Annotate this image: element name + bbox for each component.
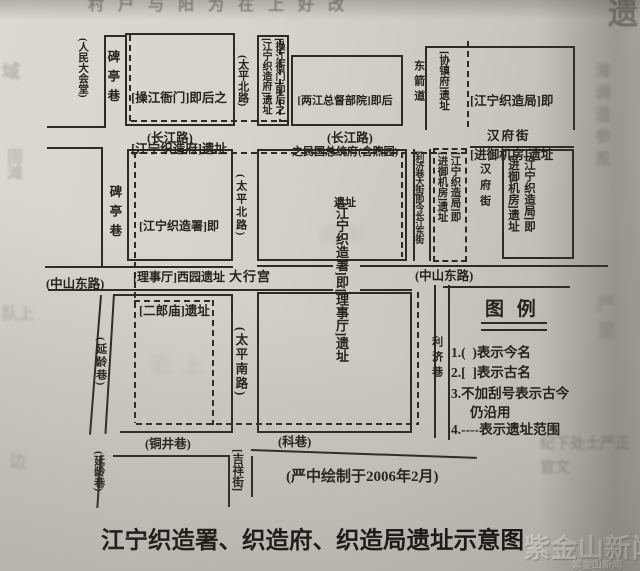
label-renmin-dahuitang: (人民大会堂) [76, 38, 88, 98]
block-outline [573, 46, 575, 130]
road-label-beitingxiang-n: 碑亭巷 [105, 50, 119, 109]
block-outline [425, 46, 427, 130]
road-label-taiping-north-n: (太平北路) [236, 55, 249, 106]
street-label-jixiangjie: [吉祥街] [230, 449, 243, 491]
block-outline [251, 456, 253, 497]
road-line-kexiang [251, 449, 477, 459]
ghost-text: 海调温参差 [588, 62, 612, 172]
ghost-text: 严里 [592, 295, 618, 347]
site-label-zhizaoju-east: [江宁织造局]即 [进御机房]遗址 [504, 155, 538, 245]
site-label-zhizaoshu-main: [江宁织造署]即[理事厅]遗址 [333, 202, 348, 362]
site-label-xiyuan: [江宁织造署]即 [理事厅]西园遗址 [129, 184, 229, 320]
road-label-lijixiang: 利济巷 [430, 336, 443, 381]
block-outline [47, 147, 101, 149]
street-line-lijixiang [448, 285, 450, 440]
ghost-text: 域 [2, 58, 20, 84]
road-line-zhongshan [360, 265, 608, 267]
road-label-yanlingxiang-n: (延龄巷) [94, 337, 107, 387]
road-label-tongjingxiang: (铜井巷) [145, 437, 191, 451]
ghost-text: 村户与阳为在上好改 [88, 0, 358, 15]
legend-title-underline [481, 322, 547, 331]
site-label-col: [进御机房]遗址 [436, 152, 449, 222]
site-label-zhizaoju-dashed: [江宁织造局]即 [进御机房]遗址 [435, 152, 462, 248]
road-label-changjiang-w: (长江路) [147, 131, 193, 145]
road-label-beitingxiang-s: 碑亭巷 [107, 185, 121, 244]
site-label-line: [江宁织造局]即 [470, 92, 553, 110]
legend-item-old-name: 2.[ ]表示古名 [451, 361, 531, 381]
site-label-line: [两江总督部院]即后 [292, 93, 398, 110]
road-label-taiping-north-s: (太平北路) [234, 174, 247, 237]
road-label-dongjiandao: 东箭道 [412, 60, 425, 105]
legend-item-dashed-boundary: 4.----表示遗址范围 [451, 418, 560, 438]
ghost-text: 固滩 [0, 148, 24, 180]
block-outline [113, 455, 230, 457]
legend-title: 图 例 [485, 299, 540, 321]
site-label-xiezhenfu: [协镇府]遗址 [437, 51, 449, 111]
ghost-text: 遗 [608, 0, 638, 33]
ghost-text: 近上 [150, 348, 214, 380]
site-label-caojiang-yamen: [操江衙门]即后之 [江宁织造府]遗址 [127, 56, 231, 192]
street-corner-line [104, 35, 127, 37]
place-label-daxinggong: 大行宫 [229, 270, 271, 285]
site-label-col: [江宁织造局]即 [449, 152, 462, 222]
site-label-caojiang-vertical: [操江衙门]即后之 [江宁织造府]遗址 [259, 38, 285, 122]
street-line-lijixiang-dajie [429, 149, 431, 261]
map-attribution: (严中绘制于2006年2月) [286, 469, 439, 486]
site-boundary-dashed [401, 152, 403, 257]
site-label-line: [理事厅]西园遗址 [129, 269, 229, 286]
road-label-zhongshan-e: (中山东路) [415, 269, 473, 283]
road-label-taiping-south: (太平南路) [233, 327, 247, 397]
site-label-line: [操江衙门]即后之 [127, 90, 231, 107]
site-label-line: [江宁织造署]即 [129, 218, 229, 235]
road-label-hanfujie-v: 汉府街 [478, 163, 491, 211]
site-label-line: 之民国总统府(含煦园) [292, 144, 398, 161]
site-label-erlangmiao: [二郎庙]遗址 [139, 304, 210, 318]
block-outline [101, 147, 103, 268]
site-boundary-dashed [467, 41, 469, 128]
block-outline [47, 126, 106, 128]
road-line-zhongshan [443, 286, 570, 288]
legend-item-no-bracket: 3.不加刮号表示古今 [451, 382, 569, 402]
road-line-zhongshan [360, 289, 412, 291]
road-label-kexiang: (科巷) [278, 435, 311, 449]
legend-item-today-name: 1.( )表示今名 [451, 341, 531, 361]
site-label-col: [操江衙门]即后之 [272, 38, 285, 115]
block-outline [425, 46, 575, 48]
site-label-col: [江宁织造府]遗址 [259, 38, 272, 115]
street-label-lijixiang-dajie: [利济巷大街]即今长江东街 [414, 151, 424, 243]
road-label-hanfujie-top: 汉府街 [487, 129, 531, 143]
road-label-changjiang-e: (长江路) [327, 131, 373, 145]
ghost-text: 队上 [2, 300, 34, 324]
site-label-col: [江宁织造局]即 [521, 155, 537, 232]
scanned-map-page: 村户与阳为在上好改 遗 域 固滩 队上 海调温参差 严里 纪下处士严正官文 边 … [0, 0, 640, 571]
page-title: 江宁织造署、织造府、织造局遗址示意图 [101, 521, 524, 555]
block-outline [120, 431, 233, 433]
site-label-col: [进御机房]遗址 [505, 155, 521, 232]
road-label-zhongshan-w: (中山东路) [46, 277, 104, 291]
road-label-yanlingxiang-s: (延龄巷) [92, 451, 105, 491]
site-boundary-dashed [417, 292, 419, 423]
site-boundary-dashed [136, 423, 419, 425]
road-line-zhongshan [257, 265, 333, 267]
ghost-text: 边 [10, 448, 26, 472]
watermark-sub-text: 紫金山新闻 [572, 556, 622, 571]
ghost-text: 纪下处士严正官文 [540, 432, 632, 480]
